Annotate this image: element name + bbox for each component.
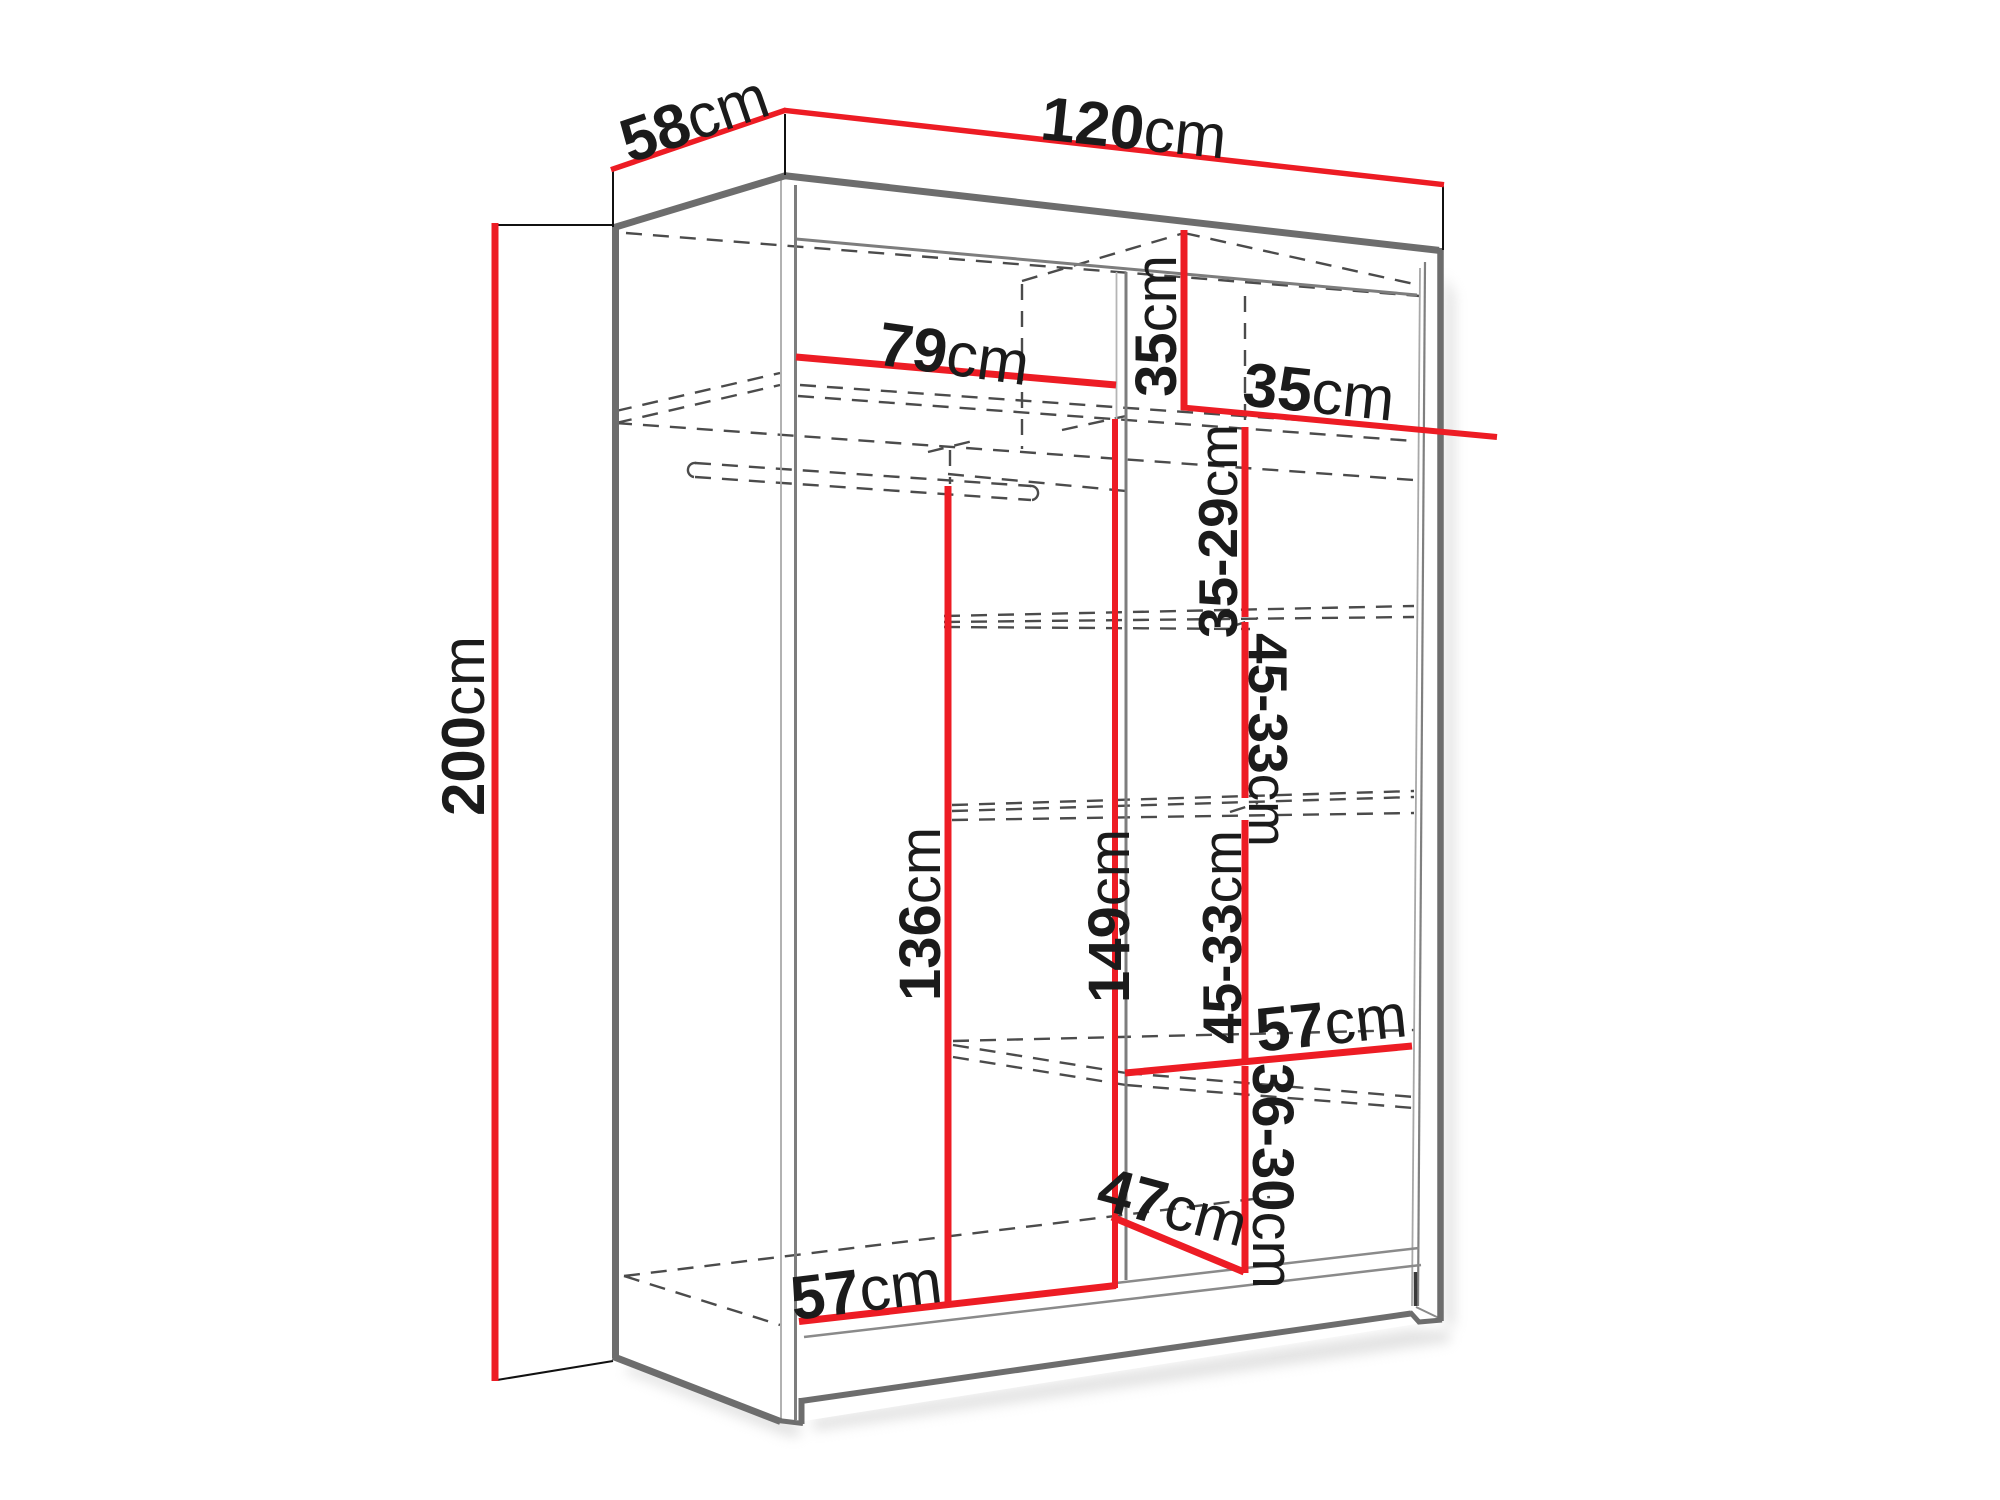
svg-text:35-29cm: 35-29cm [1187,424,1249,638]
svg-text:200cm: 200cm [430,636,497,816]
svg-text:35cm: 35cm [1124,255,1189,397]
svg-text:136cm: 136cm [888,827,953,1001]
svg-text:149cm: 149cm [1077,829,1142,1003]
svg-text:45-33cm: 45-33cm [1191,830,1253,1044]
svg-text:36-30cm: 36-30cm [1240,1063,1305,1289]
svg-text:45-33cm: 45-33cm [1237,633,1299,847]
